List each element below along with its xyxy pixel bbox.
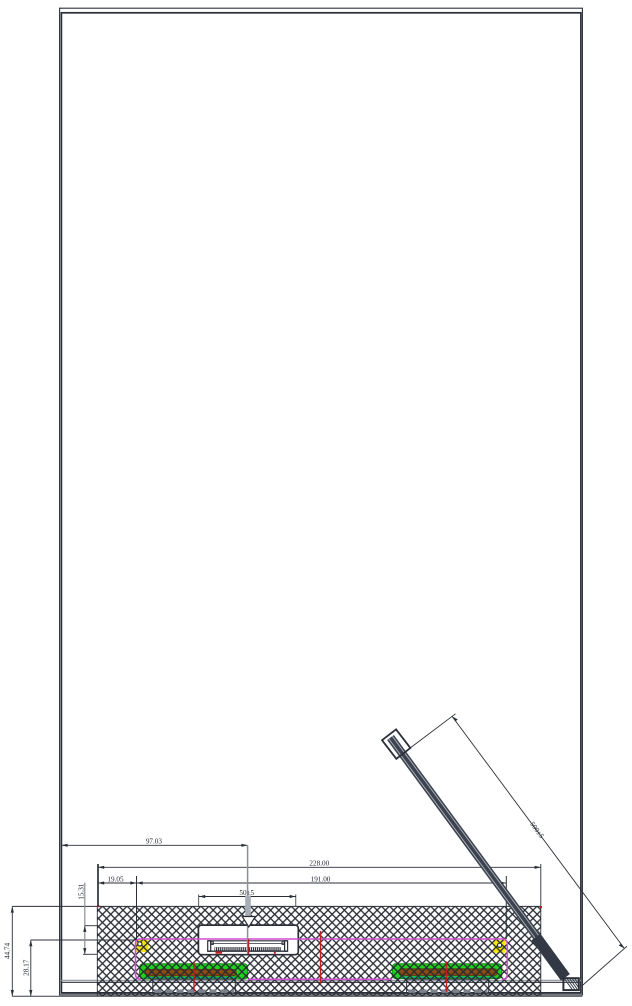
- svg-text:228.00: 228.00: [309, 860, 329, 868]
- svg-text:97.03: 97.03: [146, 838, 163, 846]
- svg-text:19.05: 19.05: [107, 875, 124, 883]
- svg-text:28.17: 28.17: [23, 959, 31, 976]
- svg-text:191.00: 191.00: [311, 875, 331, 883]
- svg-text:500±5: 500±5: [528, 820, 546, 840]
- svg-text:15.31: 15.31: [78, 883, 86, 900]
- svg-text:44.74: 44.74: [3, 943, 11, 960]
